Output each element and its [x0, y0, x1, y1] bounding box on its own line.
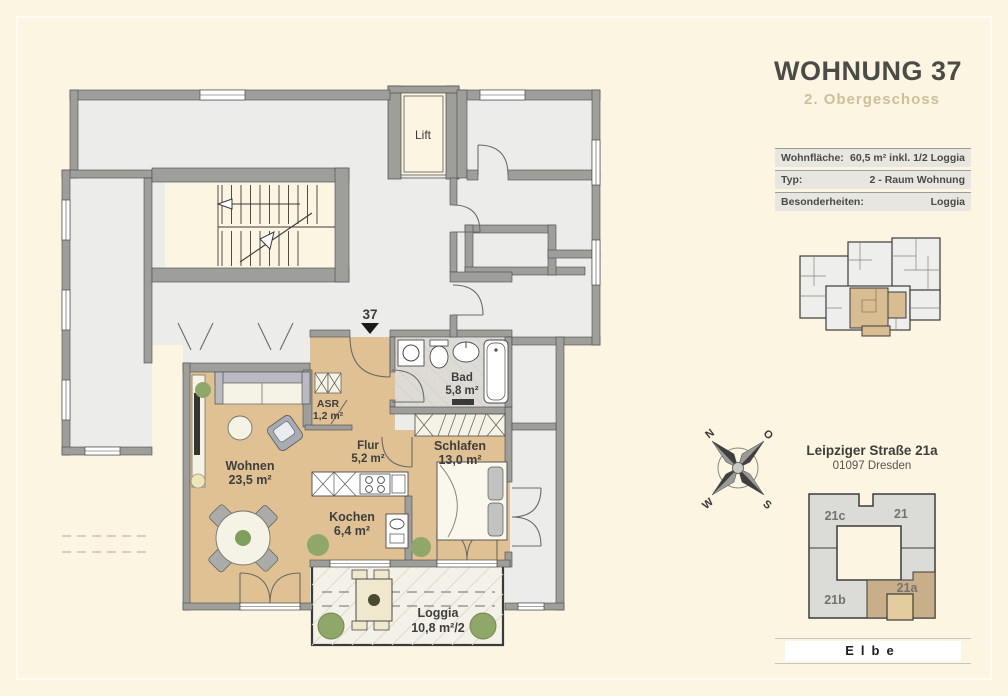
page-subtitle: 2. Obergeschoss: [774, 91, 970, 108]
address-street: Leipziger Straße 21a: [788, 443, 956, 458]
room-area: 5,2 m²: [351, 453, 384, 465]
unit-21a-highlight: [887, 594, 913, 620]
floor-overview-minimap: [792, 230, 948, 348]
asr-storage: [315, 373, 341, 393]
page-title: WOHNUNG 37: [774, 56, 974, 87]
wardrobe: [415, 414, 505, 436]
building-label: 21a: [897, 581, 919, 595]
apartment-info-table: Wohnfläche: 60,5 m² inkl. 1/2 Loggia Typ…: [775, 148, 971, 214]
lift-label: Lift: [415, 128, 432, 142]
unit-number: 37: [362, 307, 377, 322]
kitchen-counter: [312, 472, 408, 496]
info-value: 60,5 m² inkl. 1/2 Loggia: [850, 152, 965, 164]
bed: [437, 462, 507, 540]
stairwell: [165, 183, 335, 268]
washing-machine: [398, 340, 424, 366]
compass-rose: N O W S: [698, 424, 780, 512]
info-label: Wohnfläche:: [781, 152, 844, 164]
kitchen-tall-unit: [386, 514, 408, 548]
room-label: Loggia: [418, 606, 460, 620]
compass-o: O: [761, 428, 776, 443]
room-area: 5,8 m²: [445, 385, 478, 397]
toilet: [430, 340, 448, 368]
table-row: Wohnfläche: 60,5 m² inkl. 1/2 Loggia: [775, 148, 971, 167]
room-label: Flur: [357, 440, 379, 452]
floor-plan: Lift: [55, 78, 615, 656]
site-dashes: [62, 536, 152, 552]
room-wohnen-floor: [190, 372, 310, 603]
info-label: Besonderheiten:: [781, 196, 864, 208]
side-table: [228, 416, 252, 440]
address-block: Leipziger Straße 21a 01097 Dresden: [788, 443, 956, 472]
dining-table: [208, 504, 280, 574]
room-label: Wohnen: [225, 459, 274, 473]
info-value: Loggia: [931, 196, 965, 208]
plant: [195, 382, 211, 398]
building-label: 21: [894, 507, 908, 521]
loggia-table-set: [352, 570, 392, 630]
building-label: 21c: [825, 509, 846, 523]
room-area: 23,5 m²: [228, 473, 271, 487]
info-value: 2 - Raum Wohnung: [870, 174, 965, 186]
site-plan: 21c 21 21b 21a: [795, 486, 947, 636]
bathtub: [484, 340, 508, 403]
floorplan-sheet: Lift: [0, 0, 1008, 696]
sofa: [215, 372, 310, 404]
table-row: Besonderheiten: Loggia: [775, 192, 971, 211]
room-label: ASR: [317, 398, 340, 410]
plant: [318, 613, 344, 639]
room-area: 10,8 m²/2: [411, 621, 465, 635]
plant: [411, 537, 431, 557]
compass-n: N: [703, 427, 717, 441]
compass-w: W: [700, 496, 716, 512]
room-label: Kochen: [329, 510, 375, 524]
address-city: 01097 Dresden: [788, 460, 956, 472]
info-label: Typ:: [781, 174, 802, 186]
river-label: Elbe: [785, 641, 961, 661]
compass-s: S: [760, 498, 773, 512]
room-label: Schlafen: [434, 439, 486, 453]
room-area: 6,4 m²: [334, 524, 370, 538]
room-label: Bad: [451, 372, 473, 384]
lift: Lift: [388, 86, 459, 179]
room-area: 13,0 m²: [438, 453, 481, 467]
plant: [470, 613, 496, 639]
bath-mat: [452, 399, 474, 405]
sink: [453, 342, 479, 362]
room-area: 1,2 m²: [313, 410, 344, 422]
plant: [307, 534, 329, 556]
building-label: 21b: [824, 593, 846, 607]
river-band: Elbe: [775, 638, 971, 664]
table-row: Typ: 2 - Raum Wohnung: [775, 170, 971, 189]
